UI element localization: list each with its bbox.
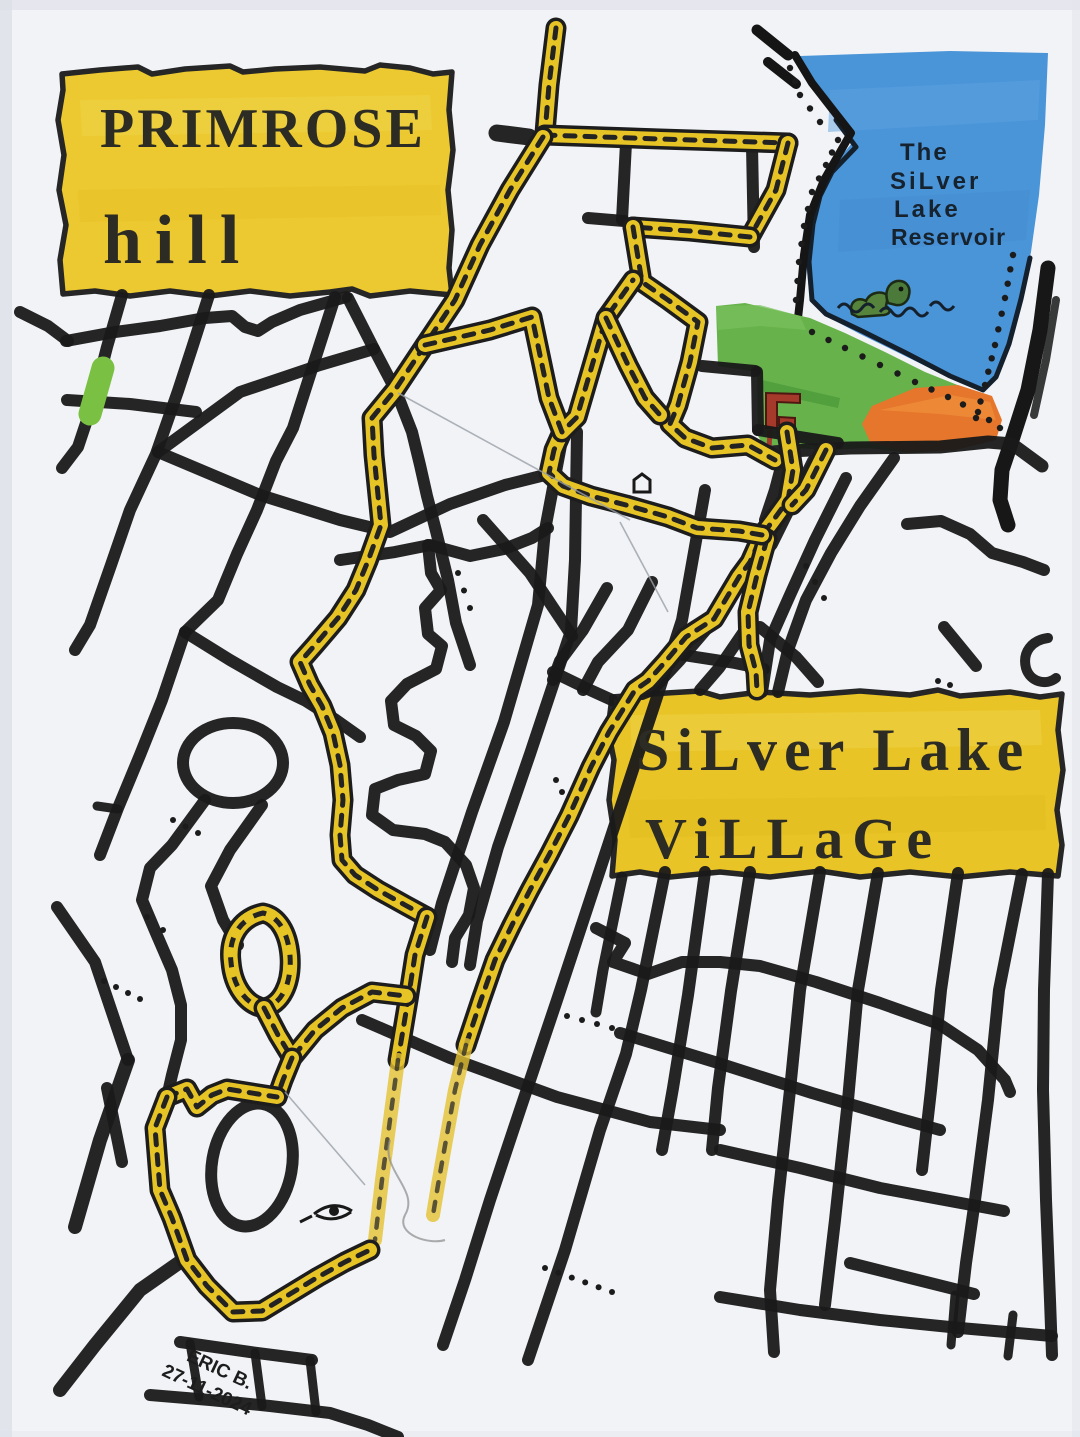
svg-text:PRIMROSE: PRIMROSE	[100, 98, 426, 160]
svg-text:ViLLaGe: ViLLaGe	[645, 806, 941, 871]
svg-text:SiLver Lake: SiLver Lake	[636, 717, 1030, 783]
svg-text:SiLver: SiLver	[890, 168, 981, 195]
svg-text:hill: hill	[103, 202, 252, 279]
svg-text:Lake: Lake	[894, 196, 961, 223]
svg-text:The: The	[900, 139, 949, 166]
svg-text:Reservoir: Reservoir	[891, 224, 1006, 250]
